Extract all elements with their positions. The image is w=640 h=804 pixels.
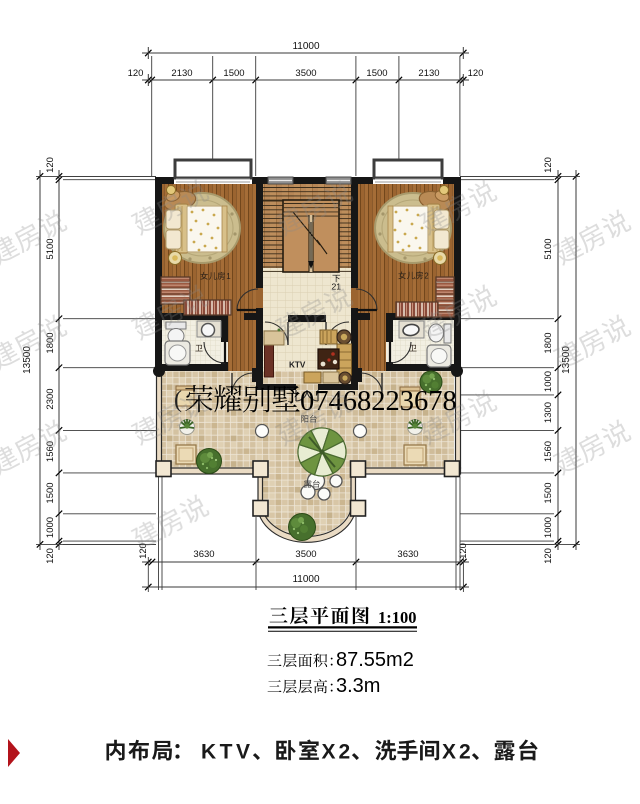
svg-text:X2: X2: [322, 741, 354, 764]
svg-text:11000: 11000: [292, 574, 320, 585]
svg-text:2130: 2130: [171, 68, 192, 79]
svg-text:1000: 1000: [45, 517, 56, 538]
svg-text:2300: 2300: [45, 388, 56, 409]
svg-text:KTV: KTV: [201, 741, 254, 764]
svg-text:1500: 1500: [366, 68, 387, 79]
svg-text:1800: 1800: [543, 332, 554, 353]
svg-text:120: 120: [128, 68, 144, 79]
svg-text:3500: 3500: [295, 549, 316, 560]
svg-text:5100: 5100: [45, 238, 56, 259]
svg-text:3500: 3500: [295, 68, 316, 79]
svg-text:1000: 1000: [543, 371, 554, 392]
svg-text:1000: 1000: [543, 517, 554, 538]
svg-text:07468223678: 07468223678: [300, 386, 457, 417]
svg-text:1560: 1560: [543, 441, 554, 462]
svg-text:120: 120: [468, 68, 484, 79]
svg-text:120: 120: [45, 157, 56, 173]
svg-text:X2: X2: [442, 741, 474, 764]
svg-text:120: 120: [543, 548, 554, 564]
svg-text:1: 1: [226, 272, 231, 281]
svg-text:2: 2: [424, 272, 429, 281]
svg-text:1500: 1500: [223, 68, 244, 79]
svg-text:1300: 1300: [543, 402, 554, 423]
svg-text:1500: 1500: [45, 482, 56, 503]
svg-text:5100: 5100: [543, 238, 554, 259]
svg-text:2130: 2130: [418, 68, 439, 79]
svg-text:87.55m2: 87.55m2: [336, 649, 414, 671]
svg-text:1500: 1500: [543, 482, 554, 503]
svg-text:13500: 13500: [22, 346, 33, 374]
svg-text:3.3m: 3.3m: [336, 675, 380, 697]
svg-text:1:100: 1:100: [378, 608, 417, 627]
svg-text:3630: 3630: [193, 549, 214, 560]
svg-text:120: 120: [45, 548, 56, 564]
svg-text:KTV: KTV: [289, 361, 306, 370]
svg-text:11000: 11000: [292, 41, 320, 52]
svg-text:3630: 3630: [397, 549, 418, 560]
svg-text:120: 120: [543, 157, 554, 173]
